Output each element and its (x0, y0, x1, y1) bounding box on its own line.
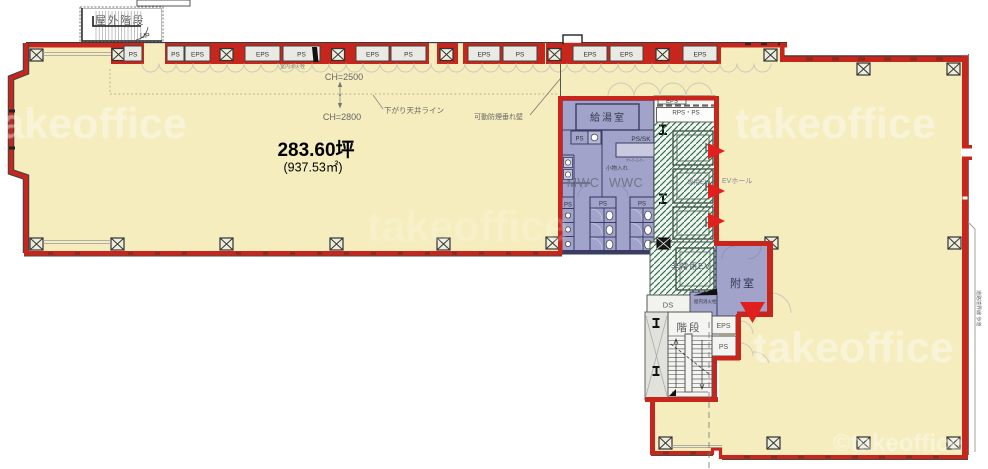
svg-text:PS: PS (719, 344, 729, 351)
svg-text:給湯室: 給湯室 (590, 111, 626, 124)
svg-text:WWC: WWC (609, 176, 643, 190)
svg-text:可動防煙垂れ壁: 可動防煙垂れ壁 (474, 112, 523, 121)
svg-text:EPS: EPS (366, 52, 380, 59)
svg-text:takeoffice: takeoffice (753, 324, 954, 372)
svg-text:PS: PS (575, 137, 583, 143)
svg-text:附室: 附室 (730, 276, 756, 290)
svg-text:RPS・PS: RPS・PS (672, 110, 699, 117)
svg-text:屋内消火栓: 屋内消火栓 (694, 298, 717, 305)
svg-text:専用EV: 専用EV (687, 177, 709, 186)
svg-text:道路境界線 歩道: 道路境界線 歩道 (975, 290, 982, 326)
svg-text:PS: PS (129, 52, 138, 59)
svg-text:階段: 階段 (677, 321, 702, 334)
svg-text:EPS: EPS (256, 52, 270, 59)
svg-text:小物入れ: 小物入れ (606, 164, 629, 172)
svg-text:CH=2500: CH=2500 (325, 72, 363, 82)
svg-text:PS: PS (404, 52, 413, 59)
svg-text:下がり天井ライン: 下がり天井ライン (384, 105, 444, 115)
svg-text:EPS: EPS (191, 52, 205, 59)
svg-text:DS: DS (663, 301, 673, 310)
svg-text:EPS: EPS (693, 52, 707, 59)
svg-text:(937.53㎡): (937.53㎡) (283, 161, 342, 175)
svg-text:EPS: EPS (477, 52, 491, 59)
svg-text:EPS: EPS (716, 323, 730, 330)
svg-text:ｸﾘｰﾅｰｺｰﾅｰ: ｸﾘｰﾅｰｺｰﾅｰ (626, 157, 644, 163)
svg-text:takeoffice: takeoffice (735, 100, 936, 148)
svg-text:PS/SK: PS/SK (631, 136, 651, 143)
svg-text:UP: UP (140, 33, 150, 40)
svg-text:EPS: EPS (583, 52, 597, 59)
svg-text:283.60坪: 283.60坪 (277, 139, 354, 161)
svg-text:非常用EV: 非常用EV (671, 261, 711, 271)
svg-text:PS: PS (297, 52, 306, 59)
svg-text:PS: PS (638, 202, 646, 208)
svg-text:PS: PS (171, 52, 180, 59)
svg-text:takeoffice: takeoffice (367, 203, 568, 251)
svg-text:PS: PS (516, 52, 525, 59)
svg-text:takeoffice: takeoffice (0, 100, 187, 148)
svg-text:CH=2800: CH=2800 (323, 112, 361, 122)
svg-text:EVホール: EVホール (722, 177, 752, 185)
svg-text:PS: PS (599, 202, 607, 208)
svg-text:©takeoffice: ©takeoffice (833, 430, 963, 457)
svg-text:EPS: EPS (620, 52, 634, 59)
